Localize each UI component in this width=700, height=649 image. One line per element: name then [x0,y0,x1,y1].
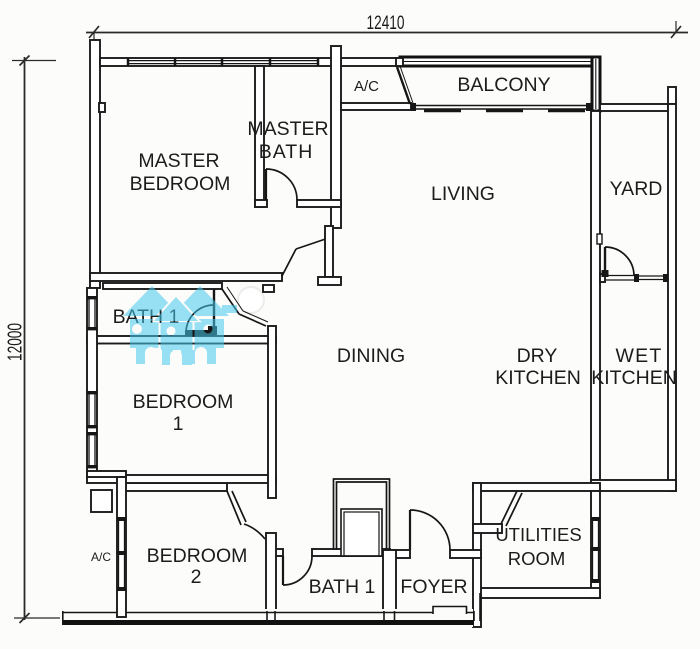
svg-text:YARD: YARD [610,178,663,200]
svg-text:UTILITIES: UTILITIES [495,524,581,545]
svg-text:BEDROOM: BEDROOM [133,391,234,413]
svg-text:A/C: A/C [354,78,379,95]
svg-text:WET: WET [616,345,663,367]
svg-text:DINING: DINING [337,345,405,367]
svg-text:BEDROOM: BEDROOM [130,173,231,195]
svg-text:BATH: BATH [259,141,314,163]
svg-text:2: 2 [191,566,202,588]
svg-text:KITCHEN: KITCHEN [591,367,677,389]
svg-text:LIVING: LIVING [431,183,495,205]
svg-text:ROOM: ROOM [508,548,566,569]
svg-text:12410: 12410 [367,12,405,34]
svg-text:BATH 1: BATH 1 [309,576,376,598]
svg-text:A/C: A/C [91,550,111,564]
svg-text:KITCHEN: KITCHEN [495,367,581,389]
svg-text:BEDROOM: BEDROOM [147,545,248,567]
svg-text:1: 1 [173,413,184,435]
svg-text:MASTER: MASTER [138,150,219,172]
svg-text:BALCONY: BALCONY [457,74,550,96]
svg-text:12000: 12000 [5,323,27,361]
svg-text:FOYER: FOYER [400,576,467,598]
svg-text:MASTER: MASTER [247,118,328,140]
svg-text:DRY: DRY [517,345,558,367]
